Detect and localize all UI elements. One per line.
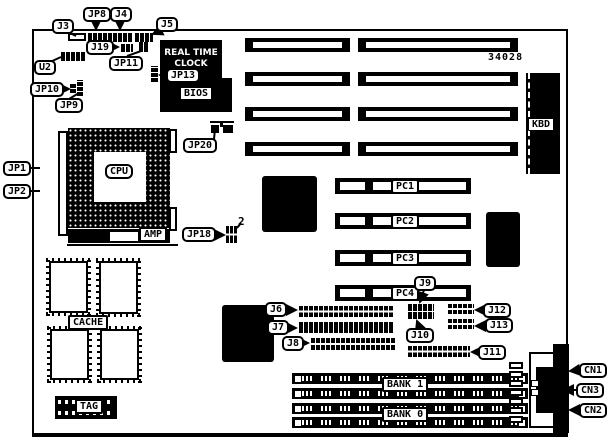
label-cn1: CN1 [579, 363, 607, 378]
label-jp18: JP18 [182, 227, 216, 242]
bios-label: BIOS [179, 86, 213, 101]
label-j3: J3 [52, 19, 74, 34]
kbd-label: KBD [528, 118, 554, 131]
amp-label: AMP [139, 227, 167, 242]
motherboard-diagram: REAL TIME CLOCK BIOS 34028 KBD CPU AMP 2… [0, 0, 611, 442]
bank1-label: BANK 1 [382, 377, 428, 392]
label-jp13: JP13 [166, 68, 200, 83]
jp18-pin2-label: 2 [238, 215, 245, 228]
label-jp10: JP10 [30, 82, 64, 97]
label-j6: J6 [265, 302, 287, 317]
label-j5: J5 [156, 17, 178, 32]
label-j13: J13 [485, 318, 513, 333]
label-jp2: JP2 [3, 184, 31, 199]
label-jp11: JP11 [109, 56, 143, 71]
label-cn2: CN2 [579, 403, 607, 418]
label-jp9: JP9 [55, 98, 83, 113]
label-u2: U2 [34, 60, 56, 75]
label-jp20: JP20 [183, 138, 217, 153]
label-j4: J4 [110, 7, 132, 22]
leader-lines [0, 0, 611, 442]
label-j9: J9 [414, 276, 436, 291]
label-j10: J10 [406, 328, 434, 343]
cache-label: CACHE [68, 315, 108, 330]
label-jp1: JP1 [3, 161, 31, 176]
label-j12: J12 [483, 303, 511, 318]
label-j11: J11 [478, 345, 506, 360]
label-cn3: CN3 [576, 383, 604, 398]
tag-label: TAG [75, 399, 103, 414]
part-number: 34028 [488, 52, 523, 63]
bank0-label: BANK 0 [382, 407, 428, 422]
label-j8: J8 [282, 336, 304, 351]
label-jp8: JP8 [83, 7, 111, 22]
label-j7: J7 [267, 320, 289, 335]
label-j19: J19 [86, 40, 114, 55]
